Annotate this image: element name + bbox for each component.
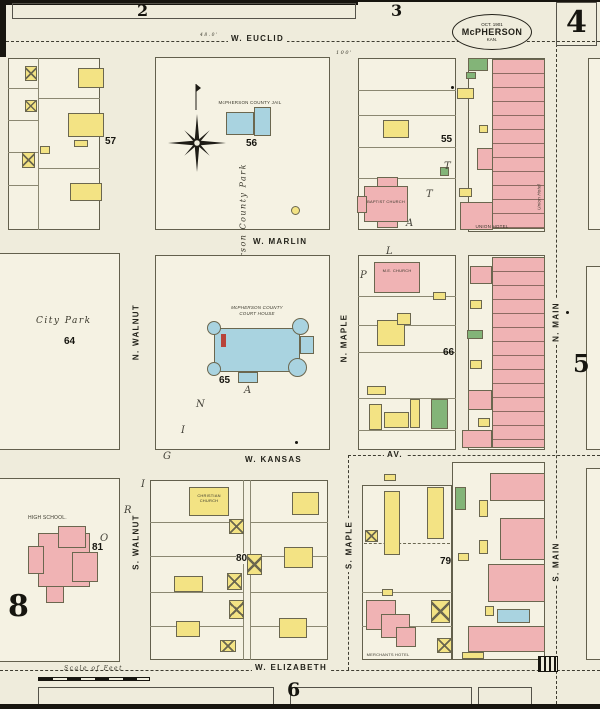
block-number-65: 65 [219,375,230,386]
dwelling-building [397,313,411,325]
commercial-building [488,564,545,602]
outbuilding [462,652,484,659]
sheet-edge-bottom [0,704,600,709]
stamp-city: McPHERSON [462,27,523,37]
sheet-number-4: 4 [566,8,587,38]
block-number-80: 80 [236,553,247,564]
stable-building [25,66,37,81]
court-house-entrance [238,372,258,383]
commercial-row-buildings [492,257,545,448]
outbuilding [367,386,386,395]
special-building [431,399,448,429]
stable-building [365,530,378,542]
special-building [468,58,488,71]
outbuilding [74,140,88,147]
lot-line [38,98,100,99]
block-number-66: 66 [443,347,454,358]
stable-building [227,573,242,590]
county-jail-building [226,112,254,135]
lot-line [358,352,456,353]
dimension-note: 100' [336,50,353,56]
block-number-57: 57 [105,136,116,147]
publisher-stamp [538,656,558,672]
sheet-number-8: 8 [8,592,29,622]
plat-letter: R [124,505,132,516]
point-marker [451,86,454,89]
high-school-label: HIGH SCHOOL. [28,515,67,521]
block-number-56: 56 [246,138,257,149]
lot-line [38,58,39,230]
street-label-w-kansas: W. KANSAS [242,455,305,464]
outbuilding [478,418,490,427]
outbuilding [479,125,488,133]
christian-church-label: CHURCH [189,498,229,503]
street-label-w-elizabeth: W. ELIZABETH [252,663,330,672]
stamp-state: KAN. [487,37,498,42]
adjacent-sheet-box-bottom [38,687,274,705]
outbuilding [40,146,50,154]
sheet-edge-left [0,0,6,57]
outbuilding [458,553,469,561]
outbuilding [470,360,482,369]
lot-line [358,178,456,179]
street-label-n-maple: N. MAPLE [340,311,349,366]
lot-line [38,168,100,169]
county-jail-label: McPHERSON COUNTY JAIL [208,100,292,105]
dwelling-building [176,621,200,637]
outbuilding [433,292,446,300]
commercial-building [470,266,492,284]
plat-letter: A [244,385,251,396]
stable-building [22,152,35,168]
plat-letter: G [163,451,171,462]
dwelling-building [410,399,420,428]
stone-building [497,609,530,623]
street-label-av: AV. [384,450,406,459]
plat-letter: L [386,246,393,257]
merchants-hotel-building [396,627,416,647]
dwelling-building [292,492,319,515]
outbuilding [384,474,396,481]
street-label-w-marlin: W. MARLIN [250,237,310,246]
livery-building [427,487,444,539]
court-house-tower [292,318,309,335]
union-hotel-label: UNION HOTEL [462,224,522,229]
lot-line-dashed [364,543,450,544]
adjacent-sheet-tab-3: 3 [391,3,402,19]
lot-line [250,592,328,593]
merchants-hotel-label: MERCHANTS HOTEL [358,652,418,657]
dwelling-building [70,183,102,201]
edge-block [588,58,600,230]
dwelling-building [284,547,313,568]
lot-line [150,556,243,557]
special-building [455,487,466,510]
lot-line [358,147,456,148]
lot-line [358,90,456,91]
plat-letter: A [406,218,413,229]
special-building [466,72,476,79]
park-structure [291,206,300,215]
court-house-vault [221,334,226,347]
commercial-building [500,518,545,560]
title-oval-stamp: OCT. 1901 McPHERSON KAN. [452,14,532,50]
court-house-tower [207,362,221,376]
stable-building [220,640,236,652]
scale-bar [38,677,150,681]
lot-line [358,325,456,326]
dwelling-building [68,113,104,137]
street-line-main [556,44,557,704]
outbuilding [485,606,494,616]
court-house-tower [207,321,221,335]
commercial-building [490,473,545,501]
lot-line [8,185,38,186]
dwelling-building [279,618,307,638]
lot-line [150,592,243,593]
outbuilding [479,540,488,554]
city-park-label: City Park [36,316,92,326]
city-park-block [0,253,120,450]
dimension-note: 48.0' [200,33,219,38]
high-school-building [72,552,98,582]
commercial-building [462,430,492,448]
edge-block [586,468,600,660]
sheet-number-6: 6 [287,681,300,700]
adjacent-sheet-box-bottom [478,687,532,705]
plat-letter: I [141,479,145,490]
point-marker [295,441,298,444]
dwelling-building [369,404,382,430]
special-building [467,330,483,339]
outbuilding [479,500,488,517]
adjacent-sheet-box-bottom [290,687,472,705]
me-church-label: M.E. CHURCH [374,268,420,273]
point-marker [566,311,569,314]
block-number-79: 79 [440,556,451,567]
scale-of-feet-label: Scale of Feet [64,665,123,672]
stable-building [229,519,244,534]
adjacent-sheet-tab-2: 2 [137,3,148,19]
street-label-n-main: N. MAIN [552,299,561,345]
dwelling-building [78,68,104,88]
stable-building [25,100,37,112]
alley-line [243,480,244,660]
plat-letter: O [100,533,108,544]
outbuilding [382,589,393,596]
court-house-tower [288,358,307,377]
court-house-label: COURT HOUSE [212,311,302,316]
county-jail-building [254,107,271,136]
stable-building [247,554,262,575]
court-house-label: McPHERSON COUNTY [212,305,302,310]
lot-line [358,430,456,431]
street-label-n-walnut: N. WALNUT [132,301,141,363]
outbuilding [459,188,472,197]
outbuilding [470,300,482,309]
block-number-55: 55 [441,134,452,145]
dwelling-building [174,576,203,592]
street-label-s-maple: S. MAPLE [345,518,354,572]
commercial-building [477,148,493,170]
plat-letter: T [426,189,433,200]
union-hotel-side-label: Union Hotel [537,184,542,210]
dwelling-building [457,88,474,99]
commercial-building [468,390,492,410]
lot-line [358,115,456,116]
high-school-building [28,546,44,574]
compass-rose-icon [168,114,226,172]
baptist-church-building [364,186,408,222]
baptist-church-label: BAPTIST CHURCH [364,199,408,204]
plat-letter: N [196,399,205,410]
stable-building [229,600,244,619]
high-school-building [58,526,86,548]
me-church-building [374,262,420,293]
lot-line [8,120,38,121]
north-arrow-icon [190,82,202,112]
dwelling-building [383,120,409,138]
stable-building [437,638,452,653]
lot-line [250,522,328,523]
adjacent-sheet-box-top [12,3,356,19]
sanborn-map-sheet: 2 3 4 OCT. 1901 McPHERSON KAN. W. EUCLID… [0,0,600,709]
lot-line [362,592,452,593]
sheet-number-5: 5 [573,352,590,376]
street-label-s-walnut: S. WALNUT [132,511,141,573]
plat-letter: P [360,270,367,281]
plat-letter: T [444,161,451,172]
high-school-building [46,586,64,603]
plat-letter: I [181,425,185,436]
street-label-w-euclid: W. EUCLID [228,34,287,43]
lot-line [8,88,38,89]
court-house-wing [300,336,314,354]
street-label-s-main: S. MAIN [552,539,561,584]
livery-building [384,491,400,555]
stable-building [431,600,450,623]
commercial-building [468,626,545,652]
block-number-64: 64 [64,336,75,347]
dwelling-building [384,412,409,428]
